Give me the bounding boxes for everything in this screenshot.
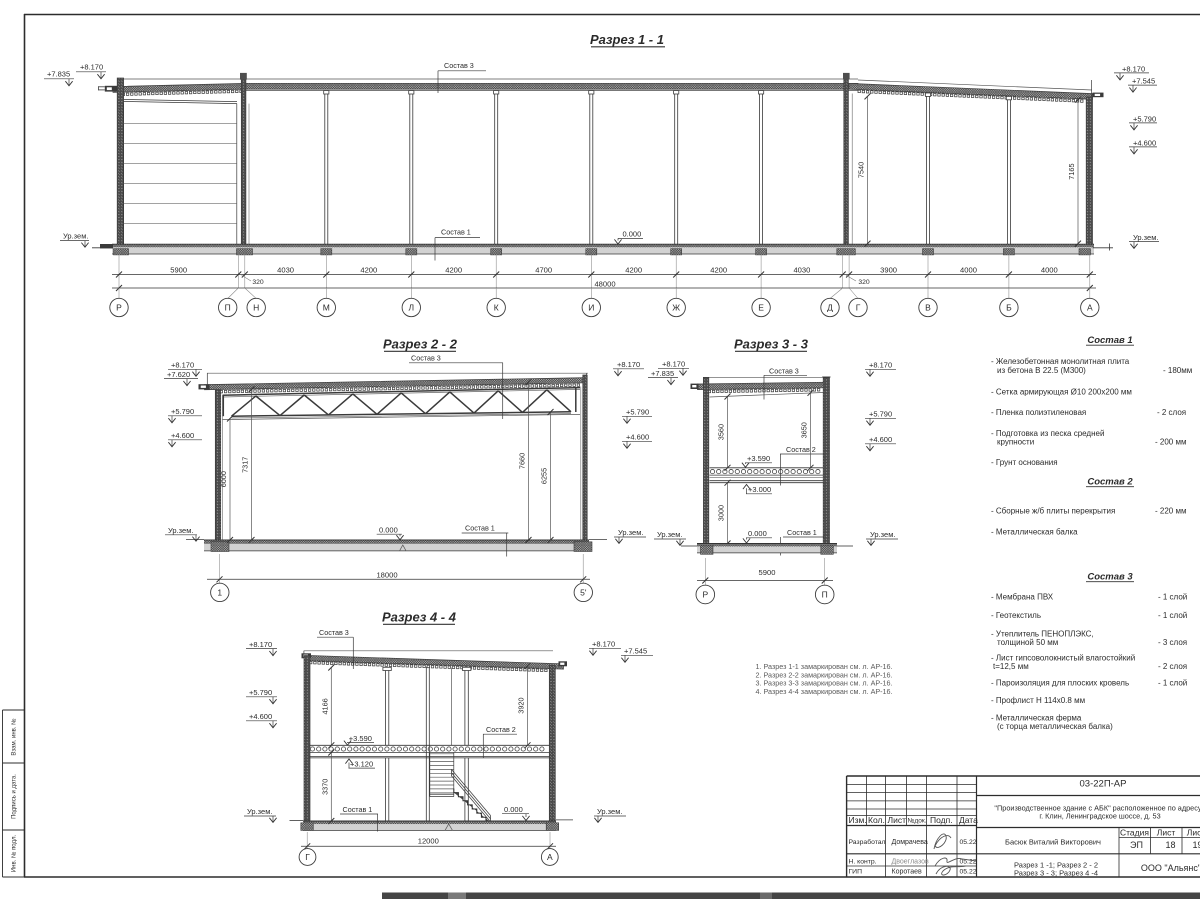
- svg-text:Разрез 3 - 3; Разрез 4 -4: Разрез 3 - 3; Разрез 4 -4: [1014, 869, 1098, 878]
- svg-text:4200: 4200: [445, 266, 462, 275]
- svg-text:Б: Б: [1006, 303, 1012, 313]
- svg-text:18: 18: [1165, 840, 1175, 850]
- svg-text:18000: 18000: [376, 571, 397, 580]
- svg-text:Состав 1: Состав 1: [465, 524, 495, 533]
- svg-text:+7.545: +7.545: [1132, 77, 1155, 86]
- svg-text:А: А: [1087, 303, 1093, 313]
- svg-text:Н: Н: [253, 303, 259, 313]
- svg-text:ГИП: ГИП: [849, 869, 863, 876]
- svg-text:- 200 мм: - 200 мм: [1155, 438, 1186, 447]
- svg-text:Ур.зем.: Ур.зем.: [597, 807, 622, 816]
- svg-text:П: П: [822, 590, 828, 600]
- svg-text:Изм.: Изм.: [849, 815, 867, 825]
- svg-text:М: М: [323, 303, 330, 313]
- svg-text:5900: 5900: [759, 568, 776, 577]
- svg-text:Разрез 1 - 1: Разрез 1 - 1: [590, 32, 664, 47]
- svg-text:Ур.зем.: Ур.зем.: [63, 232, 88, 241]
- svg-text:4200: 4200: [710, 266, 727, 275]
- svg-text:4200: 4200: [360, 266, 377, 275]
- svg-text:Р: Р: [116, 303, 122, 313]
- svg-text:+4.600: +4.600: [869, 435, 892, 444]
- svg-text:Кол.: Кол.: [868, 815, 885, 825]
- svg-text:Ур.зем.: Ур.зем.: [657, 530, 682, 539]
- svg-text:Е: Е: [758, 303, 764, 313]
- svg-text:- 3 слоя: - 3 слоя: [1158, 638, 1187, 647]
- svg-text:Коротаев: Коротаев: [892, 869, 923, 876]
- svg-text:- Пароизоляция для плоских кро: - Пароизоляция для плоских кровель: [991, 678, 1129, 687]
- svg-text:- Грунт основания: - Грунт основания: [991, 458, 1058, 467]
- svg-text:+8.170: +8.170: [171, 361, 194, 370]
- svg-text:Ур.зем.: Ур.зем.: [618, 528, 643, 537]
- svg-text:4000: 4000: [960, 266, 977, 275]
- svg-text:Г: Г: [856, 303, 861, 313]
- svg-text:3560: 3560: [717, 424, 726, 440]
- svg-text:7317: 7317: [241, 457, 250, 473]
- svg-text:Состав 3: Состав 3: [1087, 572, 1133, 583]
- svg-text:7165: 7165: [1067, 163, 1076, 179]
- svg-text:05.22: 05.22: [960, 839, 977, 846]
- svg-text:+4.600: +4.600: [249, 712, 272, 721]
- svg-text:+4.600: +4.600: [1133, 138, 1156, 147]
- svg-text:Ур.зем.: Ур.зем.: [870, 530, 895, 539]
- svg-text:- Лист гипсоволокнистый влагос: - Лист гипсоволокнистый влагостойкий: [991, 653, 1135, 662]
- svg-text:Подп.: Подп.: [930, 815, 953, 825]
- svg-text:Подпись и дата.: Подпись и дата.: [12, 774, 18, 819]
- svg-text:+7.835: +7.835: [651, 369, 674, 378]
- svg-text:5': 5': [580, 588, 587, 598]
- svg-text:5900: 5900: [170, 266, 187, 275]
- svg-text:Инв. № подл.: Инв. № подл.: [11, 834, 18, 872]
- svg-text:- Железобетонная монолитная п: - Железобетонная монолитная плита: [991, 357, 1130, 366]
- svg-text:- 1 слой: - 1 слой: [1158, 593, 1187, 602]
- svg-text:Состав 2: Состав 2: [486, 725, 516, 734]
- svg-text:+4.600: +4.600: [171, 431, 194, 440]
- svg-text:3920: 3920: [517, 697, 526, 713]
- svg-text:ООО "Альянс": ООО "Альянс": [1141, 863, 1200, 873]
- svg-text:Состав 3: Состав 3: [411, 354, 441, 363]
- svg-text:г. Клин, Ленинградское шоссе,: г. Клин, Ленинградское шоссе, д. 53: [1039, 812, 1160, 821]
- svg-text:+8.170: +8.170: [1122, 64, 1145, 73]
- svg-text:Лист: Лист: [888, 815, 907, 825]
- svg-text:Дата: Дата: [959, 815, 978, 825]
- svg-text:0.000: 0.000: [748, 529, 767, 538]
- svg-text:- 2 слоя: - 2 слоя: [1158, 662, 1187, 671]
- svg-text:- Металлическая ферма: - Металлическая ферма: [991, 713, 1082, 722]
- svg-text:Разрез 2 - 2: Разрез 2 - 2: [383, 337, 458, 352]
- svg-text:7540: 7540: [857, 162, 866, 178]
- svg-text:Ж: Ж: [672, 303, 680, 313]
- svg-text:Л: Л: [409, 303, 415, 313]
- svg-text:12000: 12000: [418, 837, 439, 846]
- svg-text:+4.600: +4.600: [626, 433, 649, 442]
- svg-text:+8.170: +8.170: [869, 361, 892, 370]
- svg-text:Состав 1: Состав 1: [441, 228, 471, 237]
- svg-text:- Геотекстиль: - Геотекстиль: [991, 611, 1041, 620]
- svg-text:+3.590: +3.590: [747, 454, 770, 463]
- svg-text:05.22: 05.22: [960, 869, 977, 876]
- svg-text:0.000: 0.000: [504, 805, 523, 814]
- svg-text:03-22П-АР: 03-22П-АР: [1080, 779, 1127, 790]
- svg-text:+8.170: +8.170: [617, 360, 640, 369]
- svg-text:4030: 4030: [277, 266, 294, 275]
- svg-text:Ур.зем.: Ур.зем.: [1133, 233, 1158, 242]
- svg-text:+5.790: +5.790: [869, 410, 892, 419]
- svg-text:Состав 1: Состав 1: [787, 528, 817, 537]
- svg-text:Р: Р: [702, 590, 708, 600]
- svg-text:№док.: №док.: [908, 818, 927, 825]
- svg-text:- Сборные ж/б плиты перекрытия: - Сборные ж/б плиты перекрытия: [991, 507, 1115, 516]
- svg-text:+3.000: +3.000: [748, 485, 771, 494]
- svg-text:3900: 3900: [880, 266, 897, 275]
- svg-text:Домрачева: Домрачева: [892, 839, 928, 846]
- svg-text:+5.790: +5.790: [626, 408, 649, 417]
- svg-text:+8.170: +8.170: [249, 640, 272, 649]
- svg-text:+3.120: +3.120: [350, 759, 373, 768]
- svg-text:- 180мм: - 180мм: [1163, 366, 1192, 375]
- svg-text:t=12,5 мм: t=12,5 мм: [993, 662, 1029, 671]
- svg-text:6255: 6255: [540, 468, 549, 484]
- svg-text:+7.620: +7.620: [167, 370, 190, 379]
- svg-text:- Утеплитель ПЕНОПЛЭКС,: - Утеплитель ПЕНОПЛЭКС,: [991, 629, 1094, 638]
- svg-text:+3.590: +3.590: [349, 734, 372, 743]
- svg-text:+8.170: +8.170: [592, 640, 615, 649]
- svg-text:- 1 слой: - 1 слой: [1158, 611, 1187, 620]
- svg-text:П: П: [225, 303, 231, 313]
- svg-text:19: 19: [1192, 840, 1200, 850]
- svg-text:толщиной 50 мм: толщиной 50 мм: [997, 638, 1058, 647]
- svg-text:крупности: крупности: [997, 438, 1034, 447]
- svg-text:320: 320: [252, 279, 264, 286]
- svg-text:из бетона В 22.5 (М300): из бетона В 22.5 (М300): [997, 366, 1086, 375]
- svg-text:Взам. инв. №: Взам. инв. №: [11, 718, 18, 755]
- svg-text:4030: 4030: [793, 266, 810, 275]
- svg-text:Состав 3: Состав 3: [319, 628, 349, 637]
- svg-text:ЭП: ЭП: [1130, 840, 1143, 850]
- svg-text:1: 1: [217, 588, 222, 598]
- svg-text:3650: 3650: [800, 422, 809, 438]
- svg-text:Состав 3: Состав 3: [769, 366, 799, 375]
- svg-text:- 220 мм: - 220 мм: [1155, 507, 1186, 516]
- svg-text:- Металлическая балка: - Металлическая балка: [991, 528, 1078, 537]
- svg-text:4000: 4000: [1041, 266, 1058, 275]
- svg-text:- 1 слой: - 1 слой: [1158, 678, 1187, 687]
- svg-text:+5.790: +5.790: [249, 688, 272, 697]
- svg-text:Г: Г: [305, 852, 310, 862]
- svg-text:А: А: [547, 852, 553, 862]
- svg-text:- 2 слоя: - 2 слоя: [1157, 408, 1186, 417]
- svg-text:- Пленка полиэтиленовая: - Пленка полиэтиленовая: [991, 408, 1086, 417]
- svg-text:Стадия: Стадия: [1120, 827, 1149, 837]
- svg-text:Разработал: Разработал: [849, 838, 886, 846]
- svg-text:Состав 3: Состав 3: [444, 61, 474, 70]
- svg-text:+8.170: +8.170: [80, 63, 103, 72]
- svg-text:+8.170: +8.170: [662, 360, 685, 369]
- svg-text:0.000: 0.000: [623, 230, 642, 239]
- svg-text:Лист: Лист: [1187, 827, 1200, 837]
- svg-text:Разрез 3 - 3: Разрез 3 - 3: [734, 337, 809, 352]
- svg-text:+5.790: +5.790: [1133, 114, 1156, 123]
- svg-text:+7.545: +7.545: [624, 647, 647, 656]
- svg-text:- Сетка армирующая Ø10 200х200: - Сетка армирующая Ø10 200х200 мм: [991, 388, 1132, 397]
- svg-text:4. Разрез 4-4 замаркирован см.: 4. Разрез 4-4 замаркирован см. л. АР-16.: [756, 687, 893, 696]
- svg-text:7660: 7660: [518, 453, 527, 469]
- svg-text:320: 320: [858, 279, 870, 286]
- svg-text:Ур.зем.: Ур.зем.: [168, 526, 193, 535]
- svg-text:3370: 3370: [320, 779, 329, 795]
- svg-text:К: К: [494, 303, 499, 313]
- svg-text:В: В: [925, 303, 931, 313]
- svg-text:0.000: 0.000: [379, 525, 398, 534]
- svg-text:Н. контр.: Н. контр.: [849, 858, 877, 865]
- svg-text:Разрез 4 - 4: Разрез 4 - 4: [382, 610, 457, 625]
- svg-text:+5.790: +5.790: [171, 407, 194, 416]
- svg-text:3000: 3000: [717, 505, 726, 521]
- svg-text:Состав 1: Состав 1: [1087, 335, 1132, 346]
- svg-text:4200: 4200: [625, 266, 642, 275]
- svg-text:Лист: Лист: [1157, 827, 1176, 837]
- svg-text:4166: 4166: [320, 698, 329, 714]
- svg-text:Басюк Виталий Викторович: Басюк Виталий Викторович: [1005, 837, 1101, 846]
- svg-text:48000: 48000: [594, 279, 615, 288]
- svg-text:Ур.зем.: Ур.зем.: [247, 807, 272, 816]
- svg-text:Д: Д: [827, 303, 833, 313]
- svg-text:4700: 4700: [535, 266, 552, 275]
- svg-text:+7.835: +7.835: [47, 70, 70, 79]
- svg-text:Состав 2: Состав 2: [786, 445, 816, 454]
- svg-text:Двоеглазов: Двоеглазов: [892, 858, 929, 865]
- svg-text:6000: 6000: [219, 471, 228, 487]
- svg-text:- Профлист Н 114х0.8 мм: - Профлист Н 114х0.8 мм: [991, 696, 1085, 705]
- svg-text:(с торца металлическая балка): (с торца металлическая балка): [997, 722, 1113, 731]
- svg-text:- Мембрана ПВХ: - Мембрана ПВХ: [991, 593, 1054, 602]
- svg-text:Состав 2: Состав 2: [1087, 477, 1133, 488]
- svg-text:Состав 1: Состав 1: [343, 805, 373, 814]
- svg-text:И: И: [588, 303, 594, 313]
